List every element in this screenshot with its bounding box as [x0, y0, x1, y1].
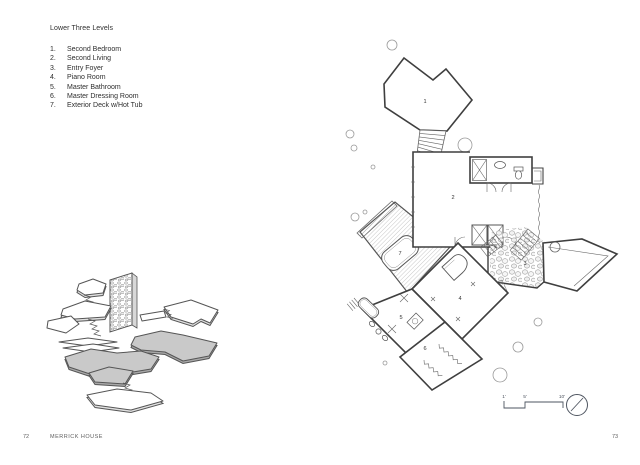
legend-item: 5.Master Bathroom: [50, 83, 142, 92]
svg-text:10': 10': [559, 394, 565, 400]
legend-list: 1.Second Bedroom 2.Second Living 3.Entry…: [50, 45, 142, 111]
room-label-2: 2: [451, 195, 454, 201]
room-second-bedroom: [384, 58, 472, 163]
room-label-6: 6: [423, 346, 426, 352]
legend-item: 4.Piano Room: [50, 73, 142, 82]
entry-porch: [543, 239, 617, 291]
legend-title: Lower Three Levels: [50, 25, 142, 32]
room-label-7: 7: [398, 251, 401, 257]
sink: [495, 162, 506, 169]
room-label-1: 1: [423, 99, 426, 105]
legend: Lower Three Levels 1.Second Bedroom 2.Se…: [50, 25, 142, 111]
side-porch: [532, 168, 543, 184]
toilet: [376, 329, 381, 334]
bottom-level-plate: [87, 389, 163, 413]
toilet: [514, 167, 523, 179]
room-label-4: 4: [458, 296, 461, 302]
page-number-left: 72: [23, 434, 29, 440]
scale-bar: 1' 5' 10': [502, 394, 565, 408]
room-label-5: 5: [399, 315, 402, 321]
running-title: MERRICK HOUSE: [50, 434, 103, 440]
book-spread: Lower Three Levels 1.Second Bedroom 2.Se…: [0, 0, 640, 465]
stone-wall-slab: [110, 273, 137, 332]
legend-item: 1.Second Bedroom: [50, 45, 142, 54]
legend-item: 3.Entry Foyer: [50, 64, 142, 73]
legend-item: 2.Second Living: [50, 54, 142, 63]
north-arrow-icon: [567, 395, 588, 416]
axonometric-levels-diagram: [33, 253, 238, 428]
legend-item: 6.Master Dressing Room: [50, 92, 142, 101]
floor-plan: 1 2 3 4 5 6 7 1' 5' 10': [340, 35, 640, 417]
page-number-right: 73: [612, 434, 618, 440]
svg-text:1': 1': [502, 394, 506, 400]
svg-text:5': 5': [523, 394, 527, 400]
bathroom-annex: [470, 157, 532, 192]
room-label-3: 3: [523, 261, 526, 267]
legend-item: 7.Exterior Deck w/Hot Tub: [50, 101, 142, 110]
